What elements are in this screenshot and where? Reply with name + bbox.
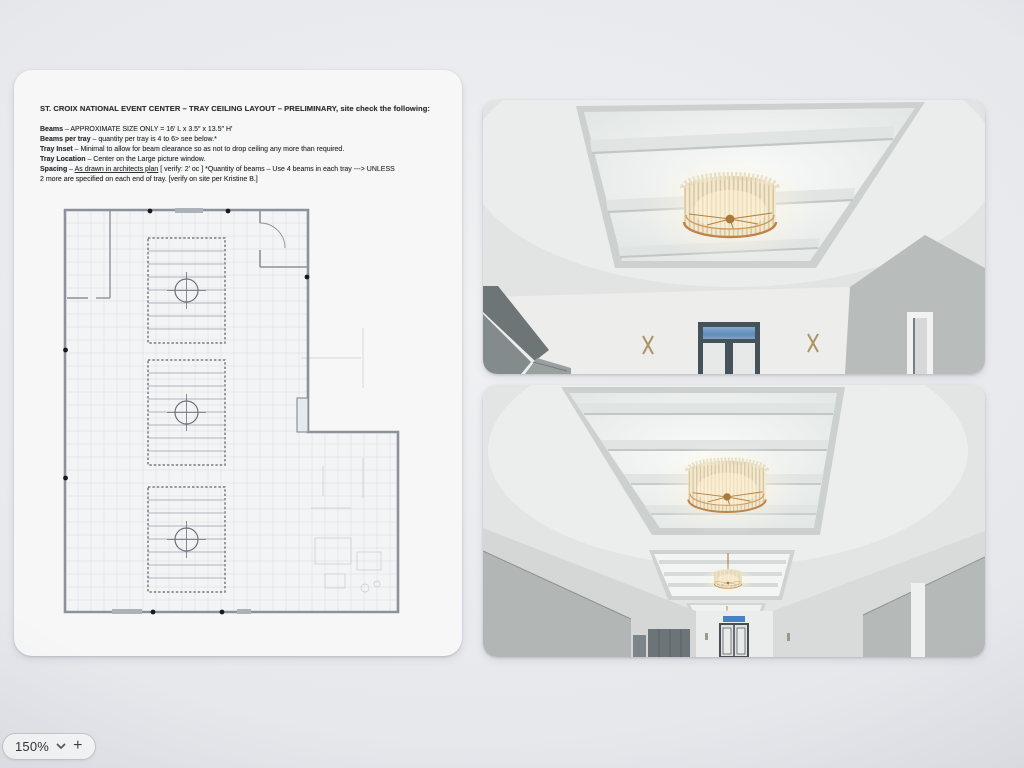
photographed-screen-background: ST. CROIX NATIONAL EVENT CENTER – TRAY C…: [0, 0, 1024, 768]
doc-line-text: – Center on the Large picture window.: [86, 156, 206, 163]
doc-line-text: [ verify: 2′ oc ] *Quantity of beams – U…: [158, 166, 395, 173]
doc-line-tray-inset: Tray Inset – Minimal to allow for beam c…: [40, 145, 446, 155]
chandelier: [642, 152, 818, 264]
plan-outline-fill: [65, 210, 398, 612]
doc-line-beams: Beams – APPROXIMATE SIZE ONLY = 16′ L x …: [40, 125, 446, 135]
sconce-mark-right: [787, 633, 790, 641]
doc-line-spacing-cont: 2 more are specified on each end of tray…: [40, 175, 446, 185]
window-sky: [703, 327, 755, 339]
document-title: ST. CROIX NATIONAL EVENT CENTER – TRAY C…: [40, 104, 446, 114]
doc-line-tray-location: Tray Location – Center on the Large pict…: [40, 155, 446, 165]
doc-line-beams-per-tray: Beams per tray – quantity per tray is 4 …: [40, 135, 446, 145]
doc-line-text: – quantity per tray is 4 to 6> see below…: [91, 136, 217, 143]
doc-line-text: – Minimal to allow for beam clearance so…: [73, 146, 345, 153]
far-double-door: [720, 624, 748, 657]
document-text-block: ST. CROIX NATIONAL EVENT CENTER – TRAY C…: [40, 104, 446, 184]
zoom-control[interactable]: 150% +: [2, 733, 96, 760]
doc-line-label: Beams per tray: [40, 136, 91, 143]
right-doorway-frame: [911, 583, 925, 657]
floor-plan-drawing: [63, 208, 403, 620]
document-page-card: ST. CROIX NATIONAL EVENT CENTER – TRAY C…: [14, 70, 462, 656]
doc-line-spacing: Spacing – As drawn in architects plan [ …: [40, 165, 446, 175]
sconce-mark-left: [705, 633, 708, 640]
doc-line-label: Beams: [40, 126, 63, 133]
rendering-tray-ceiling-view: [483, 100, 985, 374]
chandelier-middle: [702, 563, 755, 597]
doc-line-label: Tray Location: [40, 156, 86, 163]
doc-line-text: 2 more are specified on each end of tray…: [40, 176, 258, 183]
doc-line-label: Spacing: [40, 166, 67, 173]
zoom-level-dropdown[interactable]: 150%: [15, 739, 49, 754]
chevron-down-icon: [56, 743, 66, 750]
doorway-opening: [913, 318, 927, 374]
plan-pilaster: [297, 398, 308, 432]
doc-line-underlined-text: As drawn in architects plan: [75, 166, 159, 173]
doc-line-text: –: [67, 166, 74, 173]
chandelier-near: [653, 441, 801, 535]
rendering-card-top: [483, 100, 985, 374]
doc-line-label: Tray Inset: [40, 146, 73, 153]
picture-window: [698, 322, 760, 374]
rendering-hallway-view: [483, 385, 985, 657]
door-sign: [723, 616, 745, 622]
doc-line-text: – APPROXIMATE SIZE ONLY = 16′ L x 3.5″ x…: [63, 126, 232, 133]
zoom-in-button[interactable]: +: [73, 738, 82, 754]
rendering-card-bottom: [483, 385, 985, 657]
